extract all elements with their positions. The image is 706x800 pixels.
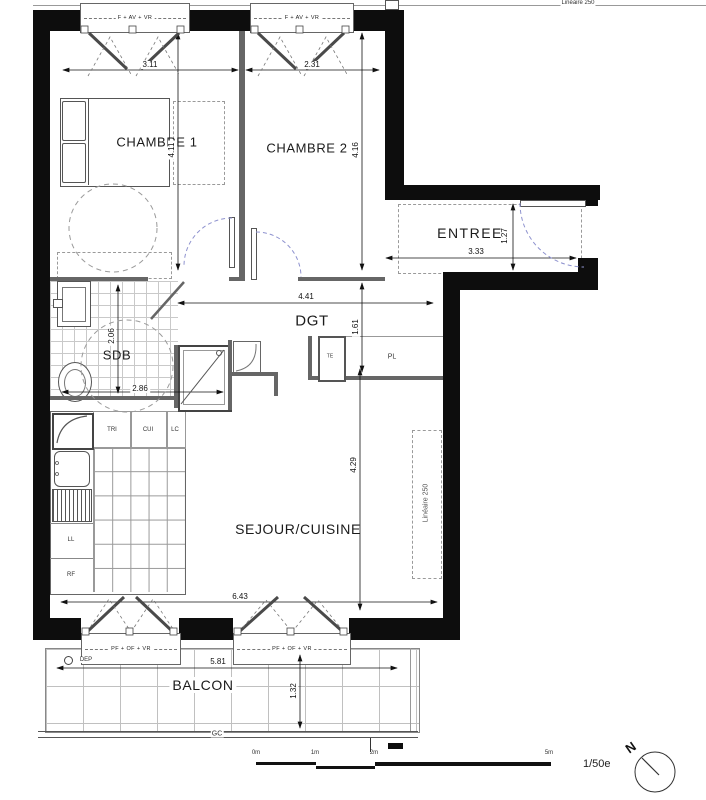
guardrail-label: GC: [211, 731, 224, 738]
dim-chambre2-height: 4.16: [352, 140, 360, 160]
scalebar-seg3: [375, 762, 551, 766]
sink: [54, 451, 90, 487]
guardrail: [38, 731, 418, 738]
frame-note-top: Linéaire 250: [560, 0, 595, 6]
dim-sejour-width: 6.43: [230, 593, 250, 601]
scalebar-seg1: [256, 762, 316, 765]
wall-left: [33, 10, 50, 640]
scalebar-1m: 1m: [310, 750, 320, 756]
window-sejour-2: PF + OF + VR: [233, 633, 351, 665]
kitchen-label-tri: TRI: [106, 427, 118, 433]
window-label: PF + OF + VR: [109, 646, 153, 652]
room-label-sejour: SEJOUR/CUISINE: [235, 521, 361, 537]
wall-sejour-top-stub: [274, 376, 278, 396]
dim-sdb-height: 2.06: [108, 326, 116, 346]
door-leaf-chambre2: [251, 228, 257, 280]
dim-entree-width: 3.33: [466, 248, 486, 256]
room-label-chambre2: CHAMBRE 2: [266, 141, 347, 156]
wall-dgt-3: [298, 277, 385, 281]
dim-dgt-height: 1.61: [352, 317, 360, 337]
dim-balcon-height: 1.32: [290, 681, 298, 701]
dim-chambre1-height: 4.11: [168, 141, 176, 160]
scalebar-5m: 5m: [544, 750, 554, 756]
room-label-chambre1: CHAMBRE 1: [116, 135, 197, 150]
room-label-balcon: BALCON: [169, 677, 236, 693]
hob: [52, 413, 94, 450]
kitchen-label-lc: LC: [170, 427, 180, 433]
dim-chambre2-width: 2.31: [302, 61, 322, 69]
wall-right-chambre2: [385, 10, 404, 185]
compass: [635, 752, 675, 792]
drainer: [52, 489, 92, 522]
closet-label-te: TE: [326, 355, 334, 360]
north-text: N: [623, 739, 639, 757]
scalebar-seg2: [316, 766, 375, 769]
wall-dgt-1: [50, 277, 148, 281]
room-label-dgt: DGT: [295, 313, 328, 330]
wall-sejour-right: [443, 272, 460, 640]
dim-sejour-height: 4.29: [350, 455, 358, 475]
dep-label: DEP: [79, 657, 93, 663]
scale-ratio: 1/50e: [583, 758, 611, 770]
window-label: F + AV + VR: [283, 15, 322, 21]
kitchen-counter-grid: [93, 447, 185, 592]
window-sejour-1: PF + OF + VR: [81, 633, 181, 665]
dim-entree-height: 1.27: [501, 226, 509, 246]
wall-top-2: [188, 10, 250, 31]
wall-entree-top: [385, 185, 600, 200]
dim-sdb-width: 2.86: [130, 385, 150, 393]
bed-head-line: [88, 98, 89, 185]
window-label: F + AV + VR: [116, 15, 155, 21]
dep-icon: [64, 656, 73, 665]
wall-shower-left: [174, 345, 178, 408]
zone-chambre1-bottom: [57, 252, 172, 279]
scalebar-0m: 0m: [251, 750, 261, 756]
floor-plan: Linéaire 250 F + AV + VR F + AV + VR PF …: [0, 0, 706, 800]
cabinet: [233, 341, 261, 376]
wall-sdb-bottom: [50, 396, 178, 400]
wall-entree-bottom: [443, 272, 598, 290]
washer-label: LL: [67, 537, 76, 543]
scalebar-2m: 2m: [369, 750, 379, 756]
wall-dgt-2: [229, 277, 245, 281]
dim-dgt-width: 4.41: [296, 293, 316, 301]
washbasin-inner: [62, 287, 86, 322]
wall-bottom-1: [33, 618, 81, 640]
lineaire-text: Linéaire 250: [423, 484, 430, 523]
closet-label-pl: PL: [387, 354, 398, 361]
bed-pillow-2: [62, 143, 86, 183]
fridge-label: RF: [66, 572, 76, 578]
wall-chambre-divider: [239, 31, 245, 277]
dim-chambre1-width: 3.11: [141, 61, 160, 69]
section-block: [388, 743, 403, 749]
door-leaf-chambre1: [229, 217, 235, 268]
wall-bottom-3: [349, 618, 460, 640]
window-chambre2: F + AV + VR: [250, 3, 354, 33]
lineaire-label: Linéaire 250: [423, 484, 430, 523]
room-label-sdb: SDB: [103, 348, 132, 363]
wall-sejour-top: [232, 372, 278, 376]
door-leaf-entrance: [520, 200, 586, 207]
toilet-bowl: [64, 369, 86, 397]
wall-te-left: [308, 336, 312, 380]
bed-pillow-1: [62, 101, 86, 141]
shower-inner: [183, 350, 225, 405]
window-chambre1: F + AV + VR: [80, 3, 190, 33]
kitchen-label-cui: CUI: [142, 427, 154, 433]
window-label: PF + OF + VR: [270, 646, 314, 652]
wall-bottom-2: [179, 618, 233, 640]
room-label-entree: ENTREE: [437, 225, 503, 241]
washbasin-faucet: [53, 299, 63, 308]
balcony-inner-edge: [410, 648, 411, 731]
scale-ratio-text: 1/50e: [583, 758, 611, 770]
compass-north-label: N: [623, 739, 639, 757]
dim-balcon-width: 5.81: [208, 658, 228, 666]
section-marker: [385, 0, 399, 10]
